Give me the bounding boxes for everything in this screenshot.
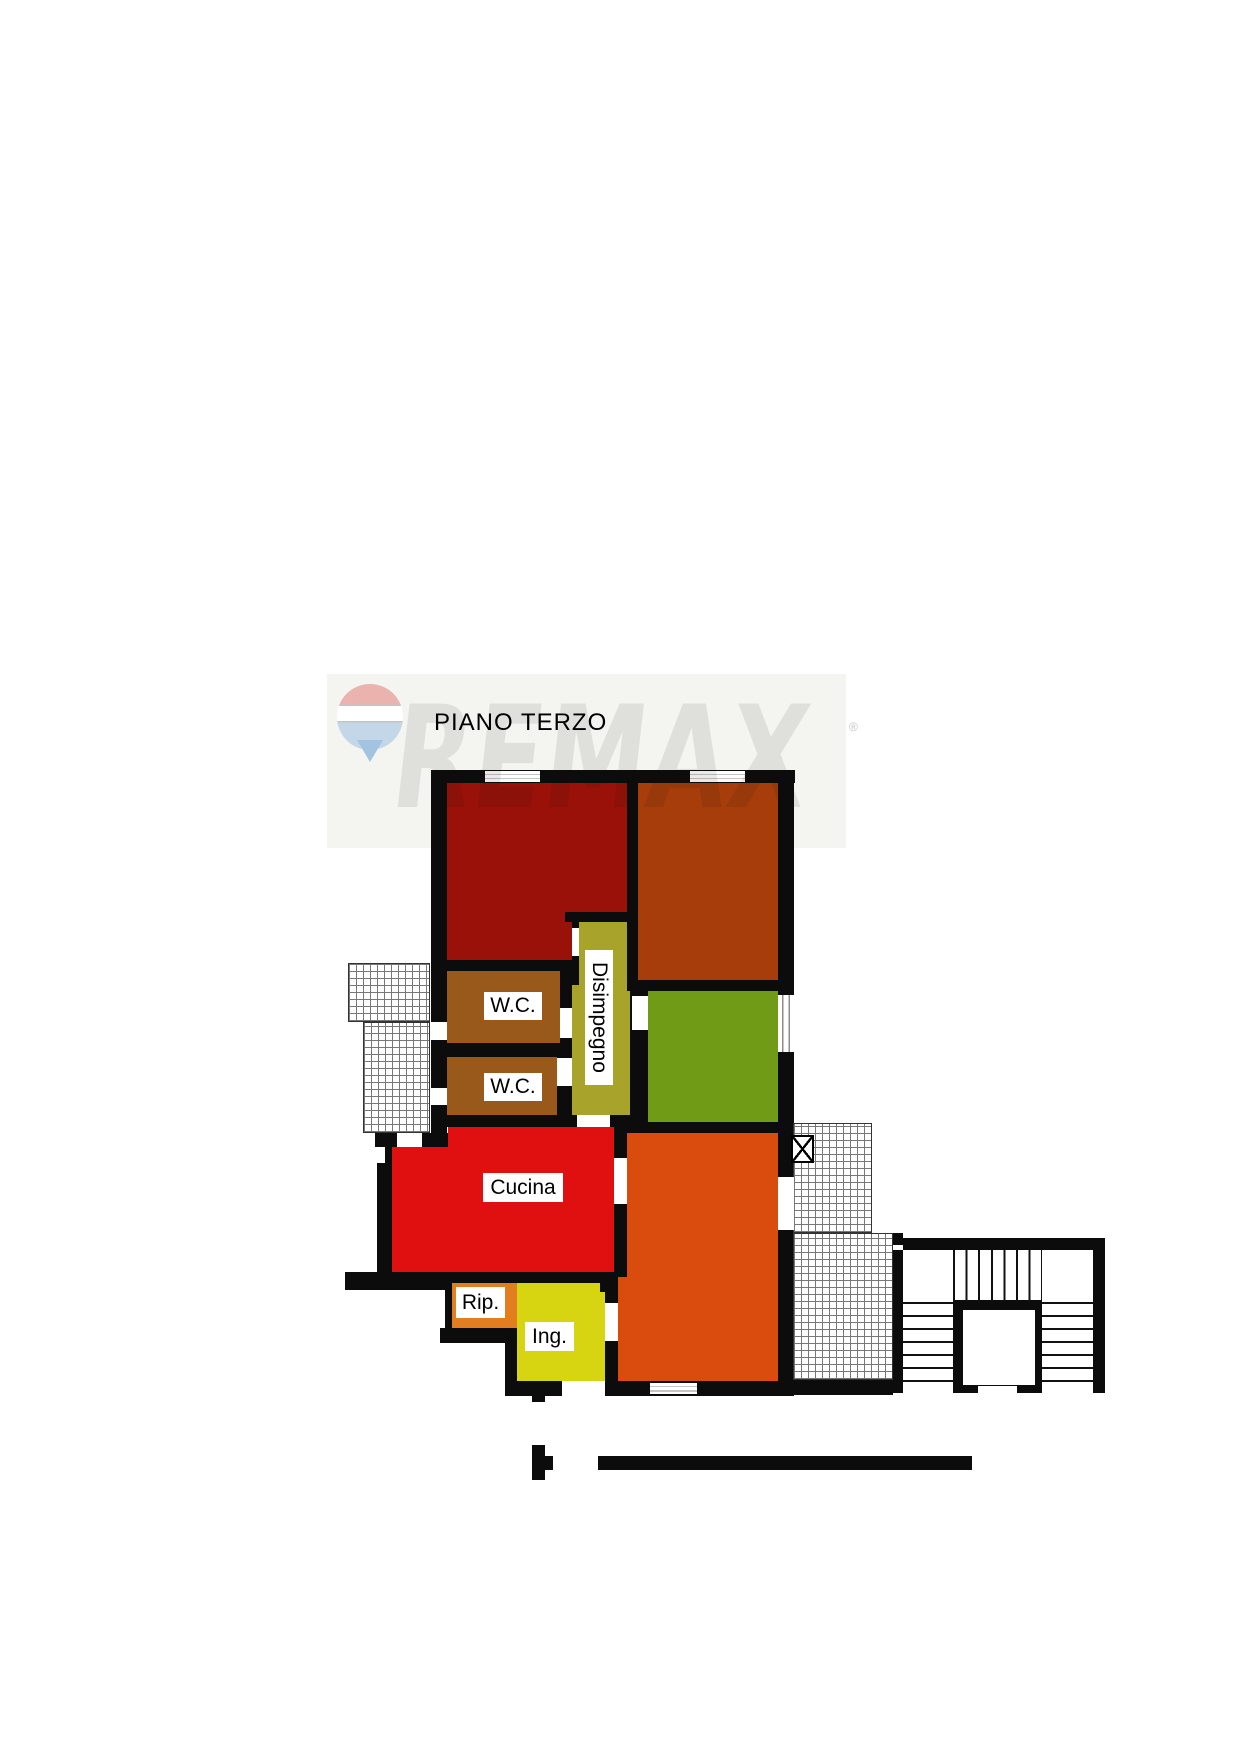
door-stub-gap bbox=[532, 1402, 545, 1445]
wall-bedroom-right-bottom bbox=[638, 980, 778, 991]
stair-treads-right bbox=[1042, 1302, 1093, 1393]
wall-terrace-bottom bbox=[793, 1380, 893, 1395]
wall-green-bottom bbox=[618, 1122, 778, 1133]
crossed-box-window-icon bbox=[791, 1135, 814, 1163]
door-cucina-living bbox=[614, 1158, 627, 1204]
floor-plan-page: PIANO TERZO bbox=[0, 0, 1240, 1755]
stair-well-inner bbox=[963, 1310, 1035, 1385]
room-living-orange bbox=[618, 1133, 778, 1381]
remax-balloon-icon bbox=[337, 684, 403, 764]
door-balcony-wc-top bbox=[431, 1022, 447, 1040]
wall-disimpegno-right bbox=[627, 922, 638, 991]
wall-wc-divider bbox=[447, 1043, 572, 1057]
balcony-hatch-lower bbox=[363, 1022, 430, 1133]
balcony-hatch-upper bbox=[348, 963, 430, 1022]
stair-treads-left bbox=[903, 1302, 953, 1393]
window-bottom bbox=[650, 1383, 697, 1394]
wall-stairwell-right bbox=[1093, 1250, 1105, 1393]
door-long-wall-gap bbox=[553, 1456, 598, 1470]
label-ing: Ing. bbox=[525, 1322, 574, 1351]
wall-bedroom-left-bottom bbox=[447, 960, 572, 971]
label-rip: Rip. bbox=[456, 1287, 505, 1318]
wall-stairwell-left bbox=[893, 1250, 903, 1393]
wall-right bbox=[778, 783, 794, 1396]
wall-ing-left bbox=[505, 1337, 517, 1381]
stair-well-opening bbox=[978, 1386, 1017, 1393]
terrace-hatch-lower bbox=[793, 1233, 893, 1380]
wall-disimpegno-top bbox=[565, 912, 638, 922]
door-wc-bottom-disimpegno bbox=[557, 1058, 572, 1086]
label-disimpegno: Disimpegno bbox=[585, 950, 613, 1085]
label-wc-bottom: W.C. bbox=[484, 1073, 542, 1101]
wall-stairwell-top bbox=[903, 1238, 1105, 1250]
stair-treads-top bbox=[953, 1250, 1042, 1302]
room-cucina-left bbox=[392, 1147, 448, 1272]
wall-ing-notch bbox=[600, 1277, 618, 1292]
door-disimpegno-cucina bbox=[577, 1115, 610, 1127]
balloon-tip bbox=[357, 740, 383, 762]
wall-rip-left bbox=[445, 1283, 452, 1328]
wall-above-ing bbox=[452, 1272, 618, 1283]
page-title: PIANO TERZO bbox=[434, 709, 607, 737]
door-living-terrace bbox=[778, 1177, 794, 1230]
label-wc-top: W.C. bbox=[484, 992, 542, 1020]
wall-cucina-left bbox=[377, 1147, 392, 1272]
window-green-right bbox=[778, 995, 794, 1052]
door-wc-top-disimpegno bbox=[560, 1008, 572, 1038]
door-balcony-wc-bottom bbox=[431, 1088, 447, 1105]
door-balcony-bar-gap bbox=[397, 1133, 422, 1147]
registered-trademark-icon: ® bbox=[849, 720, 858, 734]
door-disimpegno-green bbox=[632, 996, 648, 1030]
window-cucina-left bbox=[377, 1147, 385, 1163]
room-green bbox=[648, 991, 778, 1122]
wall-long-bottom bbox=[545, 1456, 972, 1470]
wall-cucina-bottom bbox=[345, 1272, 452, 1290]
door-ing-living bbox=[605, 1303, 618, 1341]
door-bedroom-disimpegno bbox=[572, 928, 579, 956]
door-entrance bbox=[562, 1381, 605, 1396]
label-cucina: Cucina bbox=[483, 1173, 563, 1202]
